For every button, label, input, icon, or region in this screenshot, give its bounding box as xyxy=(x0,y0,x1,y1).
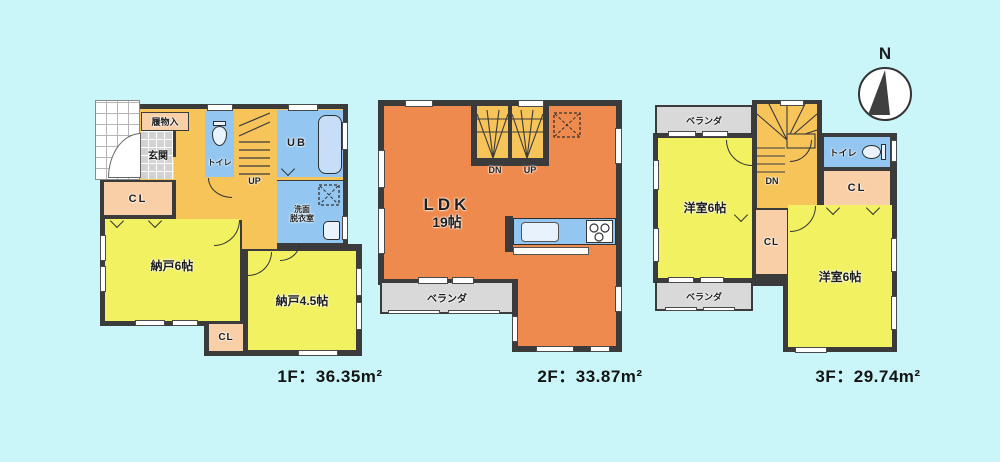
closet-3f-upper-label: CL xyxy=(824,171,890,205)
window xyxy=(891,140,897,162)
stairs-down-label: DN xyxy=(757,175,787,186)
veranda-3f-top-label: ベランダ xyxy=(655,114,753,126)
veranda-railing xyxy=(665,307,697,311)
window xyxy=(795,347,827,353)
window xyxy=(891,238,897,272)
compass-north-label: N xyxy=(850,45,920,63)
toilet-icon xyxy=(862,145,881,159)
compass-needle-icon xyxy=(856,65,914,123)
toilet-icon xyxy=(881,144,886,160)
window xyxy=(702,131,728,137)
veranda-railing xyxy=(703,307,735,311)
veranda-3f-bottom-label: ベランダ xyxy=(655,290,753,302)
window xyxy=(780,100,804,106)
window xyxy=(668,277,694,283)
window xyxy=(891,296,897,330)
compass: N xyxy=(850,45,920,125)
western-room-right-label: 洋室6帖 xyxy=(790,269,890,284)
floorplan-canvas: 履物入 玄関 トイレ UP UB xyxy=(0,0,1000,462)
floor3-area-label: 3F：29.74m² xyxy=(793,362,943,387)
window xyxy=(700,277,724,283)
closet-3f-middle-label: CL xyxy=(756,210,787,274)
window xyxy=(653,160,659,190)
window xyxy=(668,131,696,137)
window xyxy=(653,228,659,262)
toilet-3f-label: トイレ xyxy=(826,146,860,158)
